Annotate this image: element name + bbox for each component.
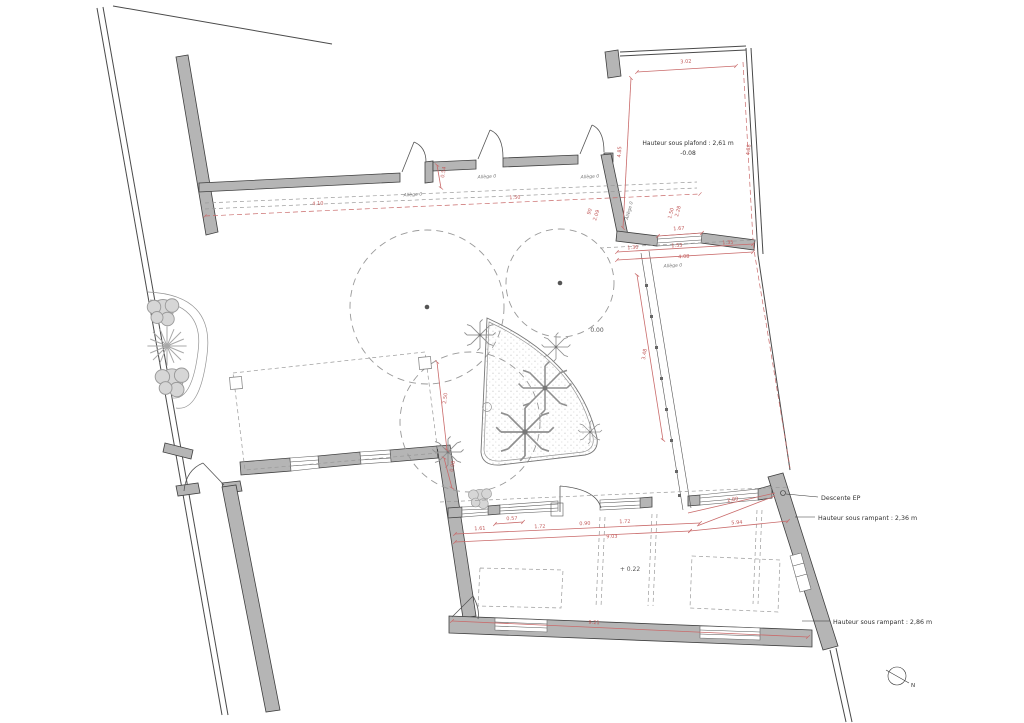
door-court-top-2 (478, 130, 503, 159)
canopy-post-2 (419, 357, 432, 370)
dim-seg-135: 1.35 (722, 240, 734, 247)
floor-plan-drawing: 3.02 4.85 4.88 1.67 1.30 1.53 1.35 4.08 … (0, 0, 1024, 723)
dim-door-90: 90 (586, 208, 594, 216)
tree-trunk-dot-2 (558, 281, 563, 286)
floor-plan-page: 3.02 4.85 4.88 1.67 1.30 1.53 1.35 4.08 … (0, 0, 1024, 723)
wall-left-small (163, 443, 193, 459)
dim-b-903: 9.03 (606, 534, 617, 541)
dim-b-921: 9.21 (588, 620, 599, 626)
window-court-bc-2 (500, 501, 558, 514)
north-arrow: N (886, 667, 915, 689)
wall-bl-room-left (222, 485, 280, 712)
level-courtyard-label: 0.00 (590, 327, 604, 334)
wall-left-door-jamb (176, 483, 200, 496)
dim-opening: 1.67 (673, 226, 685, 233)
window-bl-1 (290, 456, 319, 471)
planting-bed-fan (432, 318, 602, 468)
allege-label-3: Allège 0 (579, 173, 599, 181)
level-room-label: -0.08 (680, 150, 696, 157)
skylight-2 (690, 556, 780, 612)
skylight-1 (478, 568, 563, 608)
canopy-post-1 (230, 377, 243, 390)
dim-stack-228: 2.28 (674, 205, 683, 217)
window-bottom-2 (700, 626, 760, 640)
vegetation (147, 229, 614, 509)
window-court-bc-3 (600, 498, 640, 510)
descente-ep-label: Descente EP (821, 495, 861, 502)
dim-court-410: 4.10 (312, 201, 323, 208)
dim-b-172a: 1.72 (534, 524, 545, 531)
rampant-lower-label: Hauteur sous rampant : 2,86 m (833, 619, 932, 626)
wall-bc-left (437, 445, 476, 618)
wall-court-top-1 (199, 173, 400, 192)
dim-seg-153: 1.53 (671, 243, 683, 250)
wall-court-bc-pier-c (640, 497, 652, 508)
dim-b-057: 0.57 (506, 516, 517, 523)
dim-door-209: 2.09 (592, 209, 601, 221)
door-court-bc (551, 486, 601, 516)
dim-canopy-098: 0.98 (449, 460, 457, 472)
planting-bed-left (147, 292, 208, 408)
allege-labels: Allège 0 Allège 0 Allège 0 Allège 0 Allè… (402, 173, 682, 270)
dim-room-height-right: 4.88 (745, 144, 752, 156)
dim-b-594: 5.94 (731, 520, 743, 527)
dim-total-408: 4.08 (678, 254, 690, 261)
wall-court-bc-pier-a (448, 507, 462, 518)
allege-label-4: Allège 0 (662, 262, 682, 270)
dim-b-280: 2.80 (727, 496, 739, 504)
wall-court-top-step (425, 161, 433, 183)
dim-room-width: 3.02 (680, 59, 692, 66)
wall-court-top-3 (503, 155, 578, 167)
tree-trunk-dot-1 (425, 305, 430, 310)
allege-label-2: Allège 0 (476, 173, 496, 181)
wall-court-bc-pier-b (488, 505, 500, 515)
dim-b-090: 0.90 (579, 521, 590, 528)
wall-room1-left (601, 154, 628, 237)
dim-b-172b: 1.72 (619, 519, 630, 526)
wall-top-left (176, 55, 218, 235)
shrub-small (468, 489, 491, 509)
dim-b-161: 1.61 (474, 526, 485, 533)
north-label: N (911, 683, 915, 689)
dim-court-150: 1.50 (509, 195, 520, 202)
rampant-upper-label: Hauteur sous rampant : 2,36 m (818, 515, 917, 522)
dim-seg-130: 1.30 (627, 245, 639, 252)
door-court-top-3 (580, 125, 604, 154)
wall-court-top-2 (433, 160, 476, 171)
wall-room1-pier-top (605, 50, 621, 78)
wall-bl-pier-3 (390, 446, 438, 462)
dim-canopy-250: 2.50 (442, 392, 449, 404)
ramp-corridor (641, 251, 691, 510)
window-bl-2 (360, 450, 391, 464)
dim-step-054: 0.54 (440, 166, 448, 178)
ceiling-height-label: Hauteur sous plafond : 2,61 m (642, 140, 733, 147)
dim-room-height-left: 4.85 (617, 146, 624, 158)
level-bottom-room-label: + 0.22 (620, 566, 640, 573)
door-court-top-1 (402, 142, 426, 172)
dim-ramp-348: 3.48 (641, 348, 649, 360)
allege-label-1: Allège 0 (402, 191, 422, 199)
